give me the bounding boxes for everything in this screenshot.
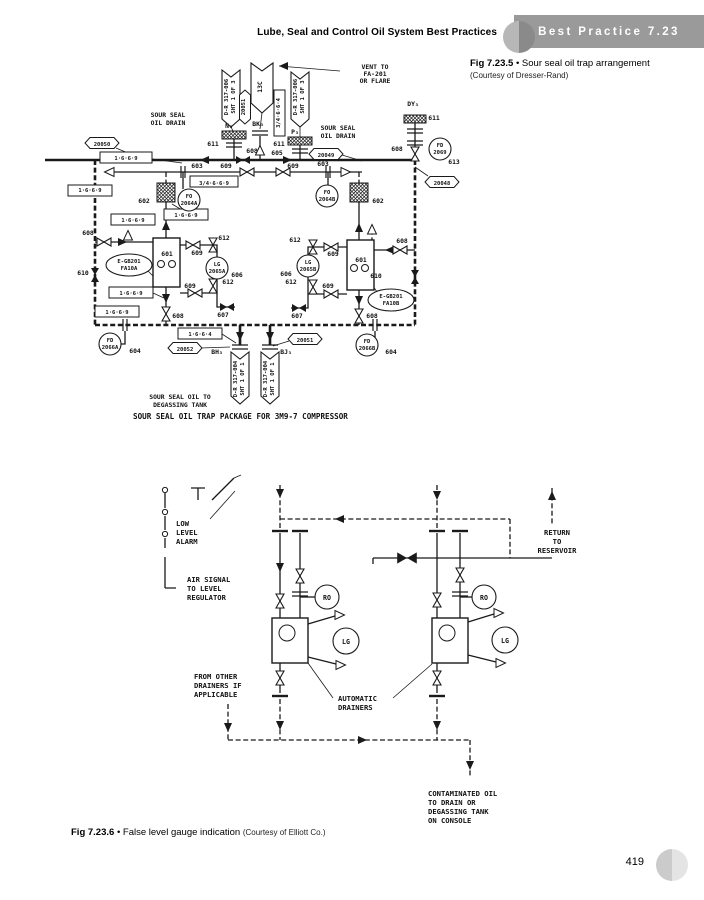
orifice-604-icon [123, 319, 127, 331]
diagram-label: 609 [191, 249, 203, 257]
diagram-label: 612 [285, 278, 297, 286]
diagram-label: ON CONSOLE [428, 816, 471, 825]
diagram-label: 3/4·6·6·4 [276, 97, 282, 127]
diagram-label: 604 [129, 347, 141, 355]
valve-607-icon [292, 304, 306, 312]
diagram-label: REGULATOR [187, 593, 227, 602]
diagram-label: 602 [372, 197, 384, 205]
valve-608-icon [236, 156, 250, 164]
diagram-label: FD [437, 143, 444, 149]
trap-vessel-601 [347, 240, 374, 290]
diagram-label: 20051 [241, 98, 247, 115]
diagram-label: D-R 317-006 [293, 78, 299, 115]
diagram-label: SOUR SEAL [151, 111, 186, 119]
diagram-label: 601 [355, 256, 367, 264]
best-practice-banner: Best Practice 7.23 [514, 15, 704, 48]
diagram-label: 20049 [318, 153, 335, 159]
diagram-label: 2066B [359, 346, 376, 352]
fig1-caption-courtesy: (Courtesy of Dresser-Rand) [470, 70, 702, 82]
diagram-label: 609 [327, 250, 339, 258]
diagram-label: SOUR SEAL OIL TRAP PACKAGE FOR 3M9-7 COM… [133, 412, 348, 421]
fig2-labels: LOWLEVELALARMAIR SIGNALTO LEVELREGULATOR… [176, 519, 577, 825]
instrument-bubble [316, 185, 338, 207]
filter-602 [350, 183, 368, 202]
fig2-piping [162, 475, 552, 778]
diagram-label: 13C [256, 81, 264, 93]
diagram-label: FO [186, 194, 193, 200]
diagram-label: RETURN [544, 528, 570, 537]
diagram-label: 1·6·6·9 [114, 156, 137, 162]
diagram-label: 1·6·6·9 [119, 291, 142, 297]
fig2-caption-label: Fig 7.23.6 [71, 827, 114, 838]
diagram-label: 20051 [297, 338, 314, 344]
diagram-label: 608 [246, 147, 258, 155]
diagram-label: D-R 317-004 [263, 360, 269, 397]
diagram-label: FO [324, 190, 331, 196]
crossover-valve-icon [397, 552, 417, 563]
diagram-label: 602 [138, 197, 150, 205]
diagram-label: FD [107, 338, 114, 344]
diagram-label: TO DRAIN OR [428, 798, 476, 807]
diagram-label: 1·6·6·9 [105, 310, 128, 316]
fig1-caption-text: Sour seal oil trap arrangement [522, 58, 650, 69]
diagram-label: DEGASSING TANK [428, 807, 489, 816]
diagram-label: 609 [220, 162, 232, 170]
filter-602 [157, 183, 175, 202]
valve-610-icon [91, 268, 99, 282]
diagram-label: D-R 317-006 [224, 78, 230, 115]
diagram-label: 608 [396, 237, 408, 245]
diagram-label: 612 [222, 278, 234, 286]
diagram-label: DRAINERS IF [194, 681, 242, 690]
fig2-caption: Fig 7.23.6 • False level gauge indicatio… [71, 827, 491, 838]
diagram-label: ALARM [176, 537, 198, 546]
diagram-label: TO LEVEL [187, 584, 222, 593]
diagram-label: SHT 1 OF 1 [270, 362, 276, 396]
diagram-label: P₃ [291, 128, 299, 136]
diagram-label: 605 [271, 149, 283, 157]
diagram-label: BH₃ [211, 348, 223, 356]
instrument-bubble [429, 138, 451, 160]
diagram-label: 607 [291, 312, 303, 320]
diagram-label: SHT 1 OF 3 [300, 80, 306, 113]
diagram-label: 610 [370, 272, 382, 280]
book-page: Lube, Seal and Control Oil System Best P… [0, 0, 704, 900]
fig2-caption-courtesy: (Courtesy of Elliott Co.) [243, 828, 326, 837]
diagram-label: 612 [289, 236, 301, 244]
diagram-label: 1·6·6·9 [174, 213, 197, 219]
diagram-label: 612 [218, 234, 230, 242]
diagram-label: 2065A [209, 269, 226, 275]
diagram-label: 1·6·6·9 [121, 218, 144, 224]
diagram-label: BK₃ [252, 120, 264, 128]
diagram-label: 2065B [300, 267, 317, 273]
diagram-label: 606 [280, 270, 292, 278]
header-halftone-circle-icon [503, 21, 535, 53]
diagram-label: 609 [184, 282, 196, 290]
fig1-caption-label: Fig 7.23.5 [470, 58, 513, 69]
diagram-label: FA10B [383, 301, 400, 307]
diagram-label: BJ₃ [280, 348, 292, 356]
diagram-label: TO [553, 537, 562, 546]
diagram-label: OR FLARE [360, 77, 391, 85]
diagram-label: DEGASSING TANK [153, 401, 207, 409]
diagram-label: LG [214, 262, 221, 268]
diagram-label: SOUR SEAL OIL TO [149, 393, 211, 401]
fig-7-23-6-diagram: LOWLEVELALARMAIR SIGNALTO LEVELREGULATOR… [130, 460, 610, 832]
diagram-label: OIL DRAIN [321, 132, 356, 140]
diagram-label: LOW [176, 519, 190, 528]
diagram-label: 603 [191, 162, 203, 170]
diagram-label: 609 [287, 162, 299, 170]
diagram-label: 604 [385, 348, 397, 356]
diagram-label: 2064B [319, 197, 336, 203]
float-icon [439, 625, 455, 641]
best-practice-banner-label: Best Practice 7.23 [538, 26, 680, 38]
float-icon [279, 625, 295, 641]
diagram-label: APPLICABLE [194, 690, 237, 699]
diagram-label: SHT 1 OF 3 [231, 80, 237, 113]
diagram-label: 611 [207, 140, 219, 148]
diagram-label: 2069 [433, 150, 446, 156]
fig1-symbols [68, 62, 459, 404]
equipment-tag [106, 254, 152, 276]
connection-flange [288, 137, 312, 145]
diagram-label: 613 [448, 158, 460, 166]
fig-7-23-5-diagram: VENT TOFA-201OR FLARED-R 317-006SHT 1 OF… [30, 55, 470, 427]
diagram-label: DY₃ [407, 100, 419, 108]
equipment-tag [368, 289, 414, 311]
diagram-label: N₃ [225, 122, 233, 130]
diagram-label: LEVEL [176, 528, 198, 537]
instrument-bubble [178, 189, 200, 211]
diagram-label: 601 [161, 250, 173, 258]
valve-608-icon [411, 147, 419, 161]
diagram-label: 20052 [177, 347, 194, 353]
diagram-label: RESERVOIR [538, 546, 578, 555]
diagram-label: 610 [77, 269, 89, 277]
valve-607-icon [220, 303, 234, 311]
diagram-label: 611 [273, 140, 285, 148]
diagram-label: 1·6·6·9 [78, 188, 101, 194]
diagram-label: OIL DRAIN [151, 119, 186, 127]
connection-flange [404, 115, 426, 123]
diagram-label: CONTAMINATED OIL [428, 789, 498, 798]
valve-610-icon [411, 270, 419, 284]
page-header-title: Lube, Seal and Control Oil System Best P… [200, 27, 497, 38]
page-number: 419 [600, 856, 644, 868]
diagram-label: E-GB201 [379, 294, 403, 300]
instrument-bubble [99, 333, 121, 355]
fig2-symbols [224, 489, 556, 770]
level-switch-icon [191, 488, 205, 500]
diagram-label: 608 [391, 145, 403, 153]
fig2-caption-text: False level gauge indication [123, 827, 240, 838]
diagram-label: LG [501, 637, 509, 645]
diagram-label: 609 [322, 282, 334, 290]
footer-halftone-circle-icon [656, 849, 688, 881]
diagram-label: SHT 1 OF 1 [240, 362, 246, 396]
diagram-label: LG [342, 638, 350, 646]
diagram-label: FROM OTHER [194, 672, 238, 681]
diagram-label: FA10A [121, 266, 138, 272]
instrument-bubble [206, 257, 228, 279]
diagram-label: AIR SIGNAL [187, 575, 231, 584]
fig2-caption-bullet: • [117, 827, 120, 838]
diagram-label: 608 [366, 312, 378, 320]
diagram-label: D-R 317-004 [233, 360, 239, 397]
diagram-label: FD [364, 339, 371, 345]
instrument-bubble [356, 334, 378, 356]
connection-flange [222, 131, 246, 139]
diagram-label: RO [480, 594, 488, 602]
diagram-label: AUTOMATIC [338, 694, 377, 703]
diagram-label: E-GB201 [117, 259, 141, 265]
diagram-label: 2066A [102, 345, 119, 351]
fig1-caption-bullet: • [516, 58, 519, 69]
diagram-label: 608 [172, 312, 184, 320]
diagram-label: 607 [217, 311, 229, 319]
diagram-label: 2064A [181, 201, 198, 207]
diagram-label: 20050 [94, 142, 111, 148]
trap-vessel-601 [153, 238, 180, 287]
diagram-label: LG [305, 260, 312, 266]
diagram-label: 603 [317, 160, 329, 168]
diagram-label: 1·6·6·4 [188, 332, 212, 338]
diagram-label: 608 [82, 229, 94, 237]
diagram-label: 611 [428, 114, 440, 122]
fig1-caption: Fig 7.23.5 • Sour seal oil trap arrangem… [470, 58, 702, 82]
diagram-label: SOUR SEAL [321, 124, 356, 132]
instrument-bubble [297, 255, 319, 277]
diagram-label: 20048 [434, 181, 451, 187]
diagram-label: 3/4·6·6·9 [199, 181, 229, 187]
diagram-label: DRAINERS [338, 703, 373, 712]
diagram-label: RO [323, 594, 331, 602]
